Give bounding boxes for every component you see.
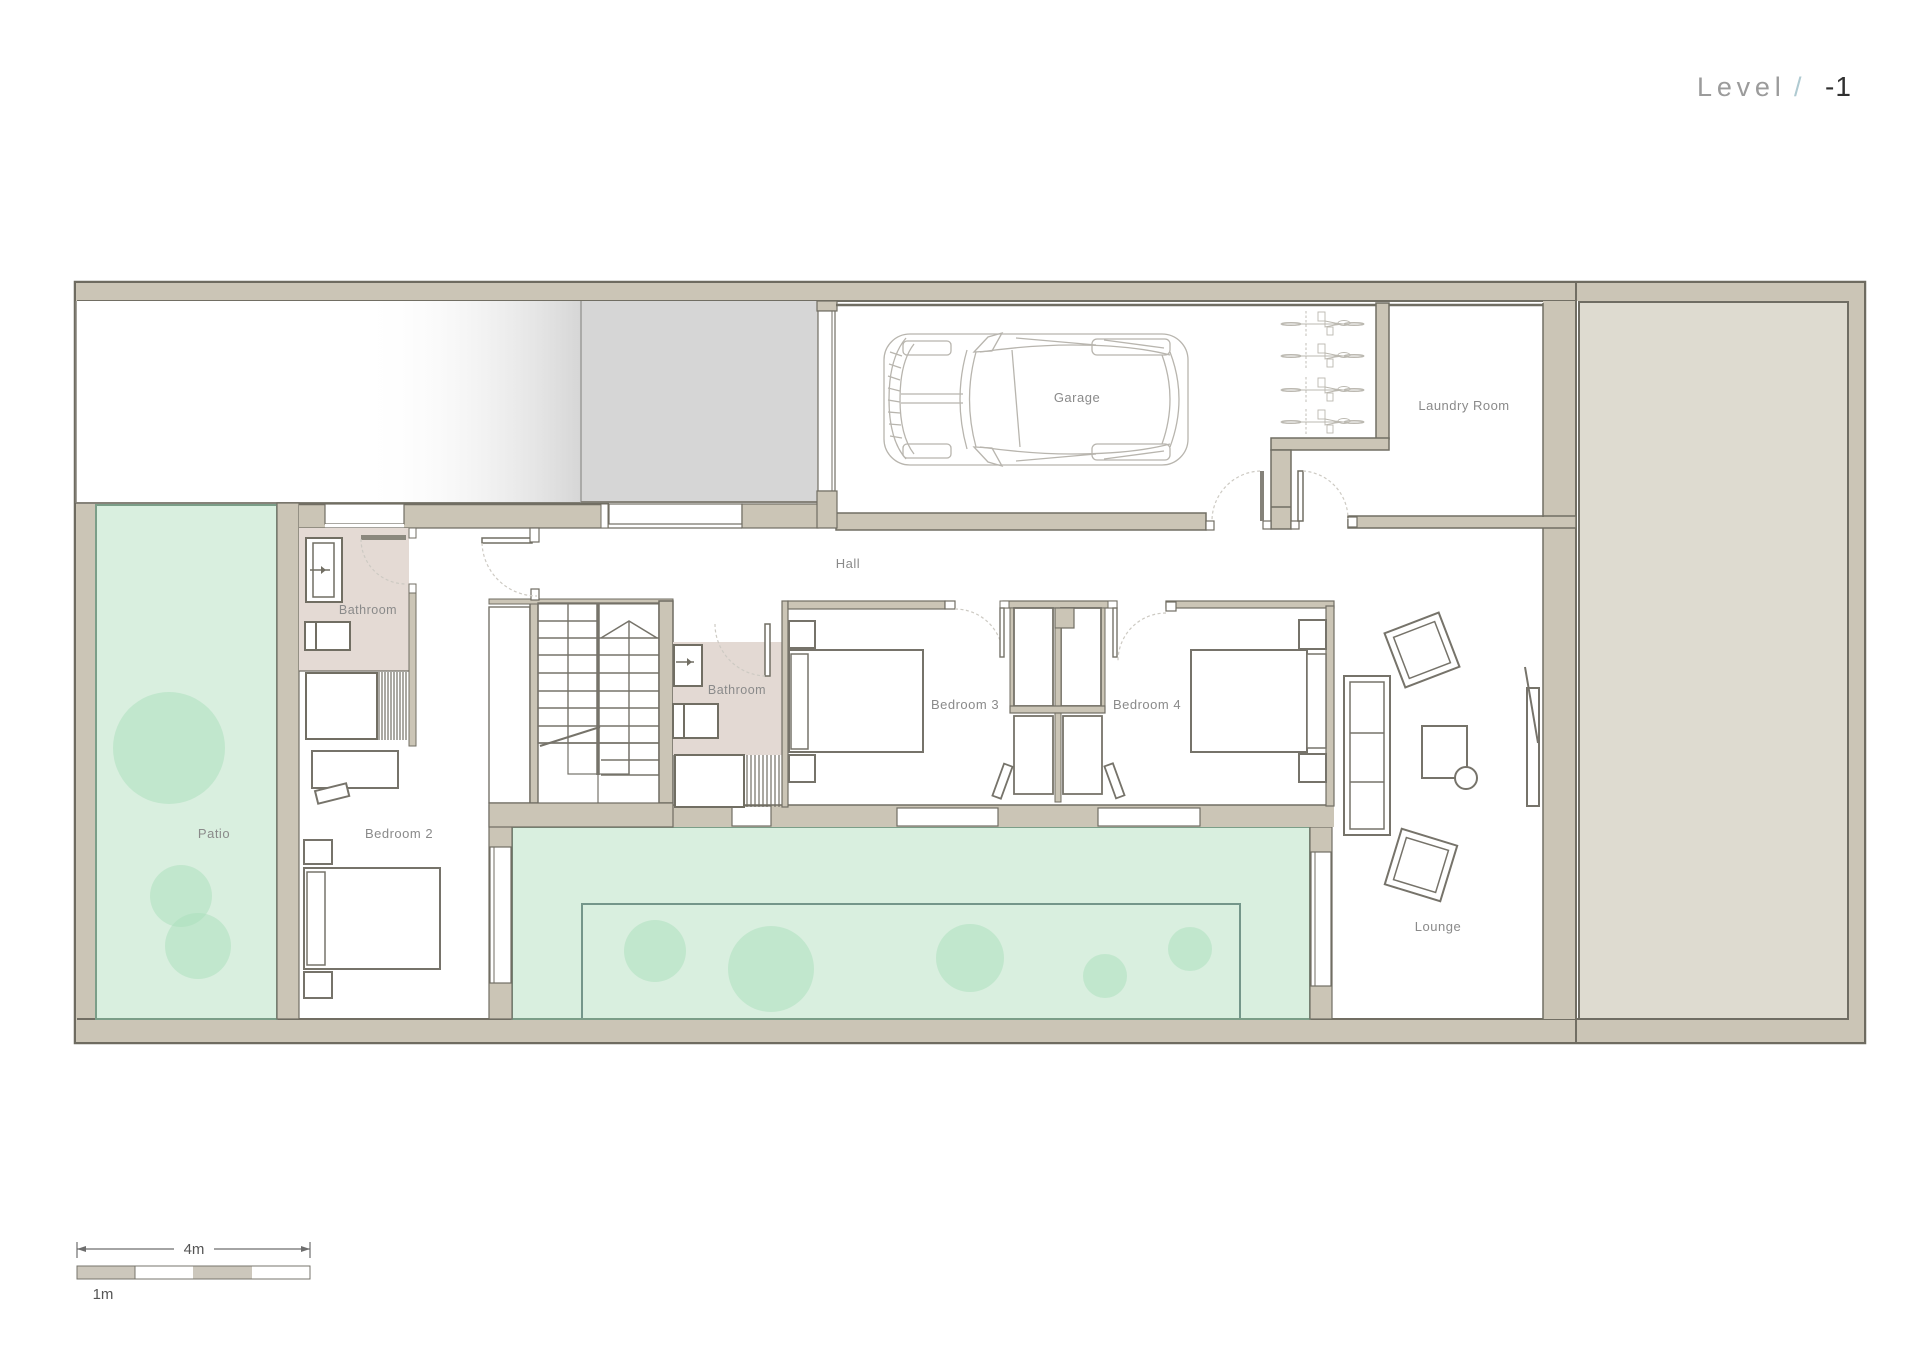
svg-text:Laundry Room: Laundry Room (1418, 398, 1509, 413)
svg-text:Bedroom 2: Bedroom 2 (365, 826, 433, 841)
svg-text:Bathroom: Bathroom (339, 603, 397, 617)
svg-text:Level: Level (1697, 72, 1786, 102)
svg-text:Hall: Hall (836, 556, 860, 571)
svg-text:-1: -1 (1825, 71, 1852, 102)
svg-text:Patio: Patio (198, 826, 230, 841)
svg-text:Lounge: Lounge (1415, 919, 1461, 934)
svg-text:/: / (1794, 72, 1802, 102)
svg-text:Garage: Garage (1054, 390, 1100, 405)
svg-text:4m: 4m (184, 1241, 205, 1258)
svg-text:Bedroom 4: Bedroom 4 (1113, 697, 1181, 712)
svg-text:1m: 1m (93, 1286, 114, 1303)
svg-text:Bedroom 3: Bedroom 3 (931, 697, 999, 712)
svg-text:Bathroom: Bathroom (708, 683, 766, 697)
